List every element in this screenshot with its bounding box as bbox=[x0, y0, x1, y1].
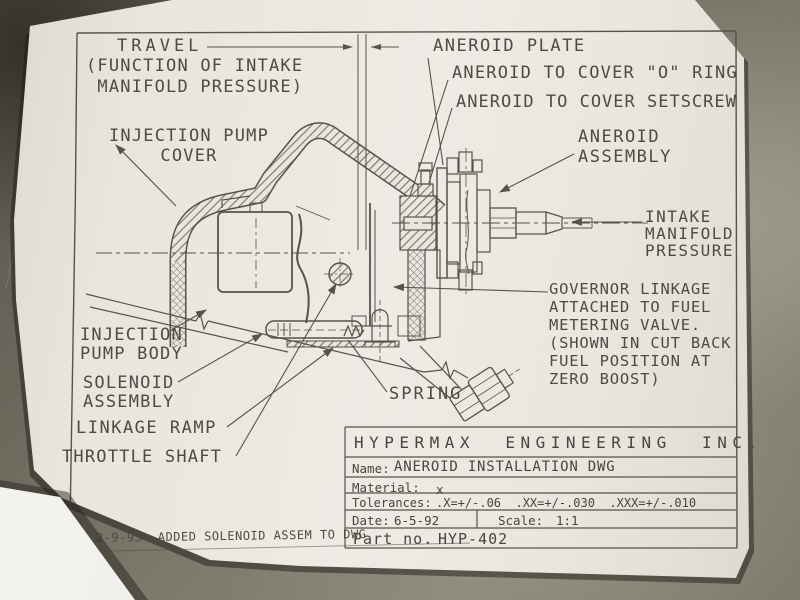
title-block-scale-label: Scale: bbox=[498, 513, 543, 528]
label-aneroid-plate: ANEROID PLATE bbox=[433, 36, 586, 57]
label-spring: SPRING bbox=[389, 384, 462, 405]
photo-of-engineering-drawing: { "photo": { "surface_description": "dar… bbox=[0, 0, 800, 600]
title-block-name-value: ANEROID INSTALLATION DWG bbox=[394, 459, 616, 475]
label-aneroid-o-ring: ANEROID TO COVER "O" RING bbox=[452, 63, 738, 84]
label-linkage-ramp: LINKAGE RAMP bbox=[76, 418, 217, 439]
title-block-part-no-value: HYP-402 bbox=[438, 530, 508, 548]
title-block-date-value: 6-5-92 bbox=[394, 513, 439, 528]
title-block-name-label: Name: bbox=[352, 461, 390, 476]
label-travel: TRAVEL bbox=[117, 36, 202, 57]
title-block-material-value: x bbox=[436, 482, 444, 497]
title-block-tolerances-label: Tolerances: bbox=[352, 496, 431, 510]
title-block-part-no-label: Part no. bbox=[353, 530, 433, 548]
title-block-date-label: Date: bbox=[352, 513, 390, 528]
title-block-material-label: Material: bbox=[352, 480, 420, 495]
label-injection-pump-cover: INJECTION PUMP COVER bbox=[100, 126, 278, 166]
title-block-scale-value: 1:1 bbox=[556, 513, 579, 528]
title-block-company: HYPERMAX ENGINEERING INC. bbox=[354, 433, 763, 452]
leader-lines bbox=[116, 58, 642, 456]
revision-note: 2-9-93 ADDED SOLENOID ASSEM TO DWG bbox=[96, 524, 367, 549]
label-aneroid-assembly: ANEROID ASSEMBLY bbox=[578, 127, 672, 167]
label-throttle-shaft: THROTTLE SHAFT bbox=[62, 447, 222, 468]
label-travel-note: (FUNCTION OF INTAKE MANIFOLD PRESSURE) bbox=[86, 56, 303, 98]
title-block-tolerances-value: .X=+/-.06 .XX=+/-.030 .XXX=+/-.010 bbox=[436, 496, 696, 510]
label-governor-linkage: GOVERNOR LINKAGE ATTACHED TO FUEL METERI… bbox=[549, 280, 731, 388]
label-aneroid-setscrew: ANEROID TO COVER SETSCREW bbox=[456, 92, 737, 113]
label-injection-pump-body: INJECTION PUMP BODY bbox=[80, 326, 183, 364]
label-intake-manifold-pressure: INTAKE MANIFOLD PRESSURE bbox=[645, 208, 734, 259]
label-solenoid-assembly: SOLENOID ASSEMBLY bbox=[83, 374, 174, 412]
